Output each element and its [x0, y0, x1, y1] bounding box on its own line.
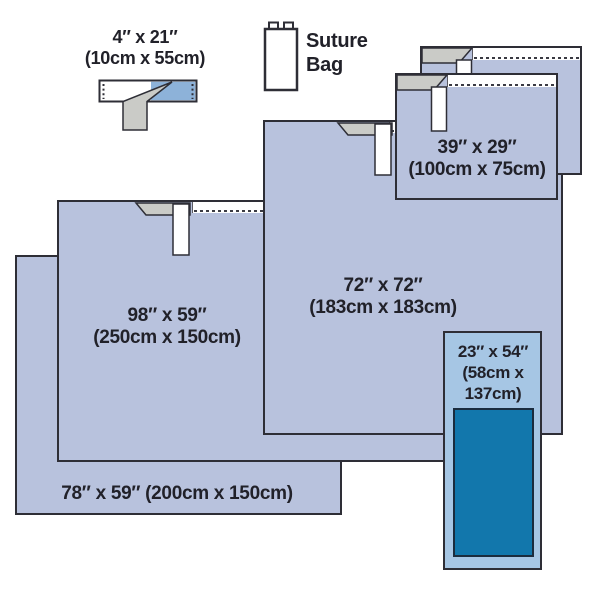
size-label-line1: 39″ x 29″: [408, 137, 545, 159]
adhesive-tape-strip: [472, 48, 580, 60]
size-label-72x72: 72″ x 72″ (183cm x 183cm): [309, 275, 457, 319]
suture-bag-icon: [263, 21, 301, 93]
size-label-line1: 98″ x 59″: [93, 305, 241, 327]
dark-blue-panel: [453, 408, 534, 557]
corner-fold-icon: [337, 121, 395, 179]
size-label-line2: (10cm x 55cm): [85, 48, 205, 69]
size-label-line2: (183cm x 183cm): [309, 297, 457, 319]
size-label-line3: 137cm): [458, 383, 528, 404]
adhesive-tape-strip: [192, 202, 266, 213]
size-label-23x54: 23″ x 54″ (58cm x 137cm): [458, 341, 528, 404]
perforation-dots: [474, 57, 579, 59]
perforation-dots: [449, 84, 555, 86]
size-label-line1: 72″ x 72″: [309, 275, 457, 297]
suture-bag-line2: Bag: [306, 53, 368, 77]
size-label-line2: (250cm x 150cm): [93, 327, 241, 349]
size-label-78x59: 78″ x 59″ (200cm x 150cm): [61, 483, 292, 505]
corner-fold-icon: [135, 201, 193, 259]
size-label-line1: 78″ x 59″ (200cm x 150cm): [61, 483, 292, 505]
perforation-dots: [194, 210, 265, 212]
size-label-line1: 23″ x 54″: [458, 341, 528, 362]
size-label-98x59: 98″ x 59″ (250cm x 150cm): [93, 305, 241, 349]
suture-bag-line1: Suture: [306, 29, 368, 53]
size-label-line2: (58cm x: [458, 362, 528, 383]
size-label-line2: (100cm x 75cm): [408, 159, 545, 181]
corner-fold-icon: [396, 74, 452, 134]
tape-drape-icon: [98, 79, 200, 135]
adhesive-tape-strip: [447, 75, 556, 87]
suture-bag-label: Suture Bag: [306, 29, 368, 77]
size-label-4x21: 4″ x 21″ (10cm x 55cm): [85, 27, 205, 69]
size-label-39x29: 39″ x 29″ (100cm x 75cm): [408, 137, 545, 181]
size-label-line1: 4″ x 21″: [85, 27, 205, 48]
surgical-drape-pack-diagram: 4″ x 21″ (10cm x 55cm) Suture Bag 39″ x …: [0, 0, 600, 600]
